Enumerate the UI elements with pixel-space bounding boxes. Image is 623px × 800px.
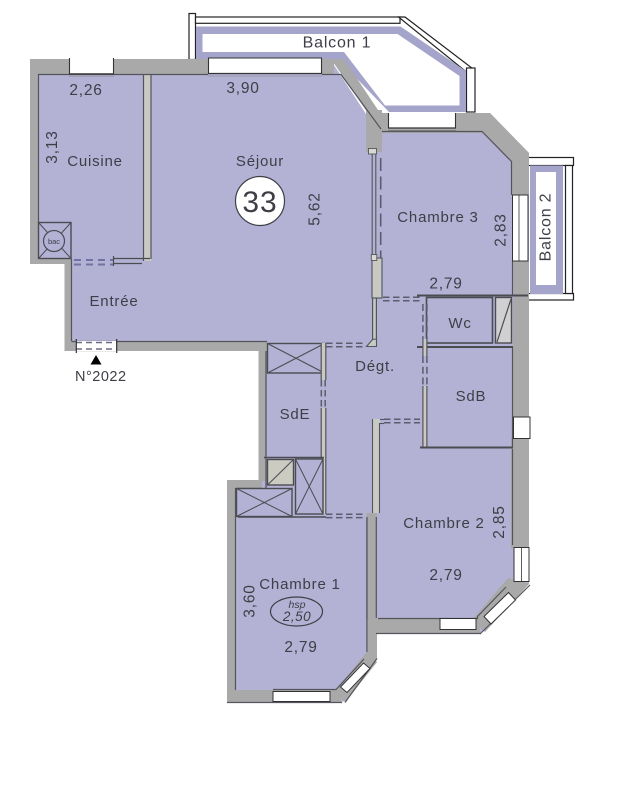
svg-text:2,79: 2,79 xyxy=(284,639,317,656)
svg-text:2,83: 2,83 xyxy=(493,213,510,246)
svg-text:Dégt.: Dégt. xyxy=(355,358,395,375)
svg-text:Cuisine: Cuisine xyxy=(67,153,123,170)
svg-text:SdB: SdB xyxy=(456,388,487,405)
svg-text:2,79: 2,79 xyxy=(429,276,462,293)
svg-text:2,26: 2,26 xyxy=(69,82,102,99)
svg-text:Wc: Wc xyxy=(448,315,471,332)
svg-text:SdE: SdE xyxy=(280,406,311,423)
svg-text:3,90: 3,90 xyxy=(226,80,259,97)
svg-text:2,50: 2,50 xyxy=(282,609,311,624)
svg-text:Chambre 1: Chambre 1 xyxy=(259,576,340,593)
svg-text:2,79: 2,79 xyxy=(429,567,462,584)
svg-text:N°2022: N°2022 xyxy=(75,369,127,385)
svg-text:Chambre 3: Chambre 3 xyxy=(397,209,478,226)
svg-text:Entrée: Entrée xyxy=(90,293,139,310)
svg-text:Balcon 1: Balcon 1 xyxy=(303,35,372,52)
svg-text:2,85: 2,85 xyxy=(491,505,508,538)
svg-text:bac: bac xyxy=(48,237,60,246)
svg-text:3,60: 3,60 xyxy=(242,584,259,617)
svg-text:Chambre 2: Chambre 2 xyxy=(403,515,484,532)
svg-text:Balcon 2: Balcon 2 xyxy=(538,193,555,262)
svg-text:5,62: 5,62 xyxy=(307,192,324,225)
svg-text:Séjour: Séjour xyxy=(236,153,284,170)
svg-text:33: 33 xyxy=(242,186,277,219)
svg-text:3,13: 3,13 xyxy=(44,130,61,163)
